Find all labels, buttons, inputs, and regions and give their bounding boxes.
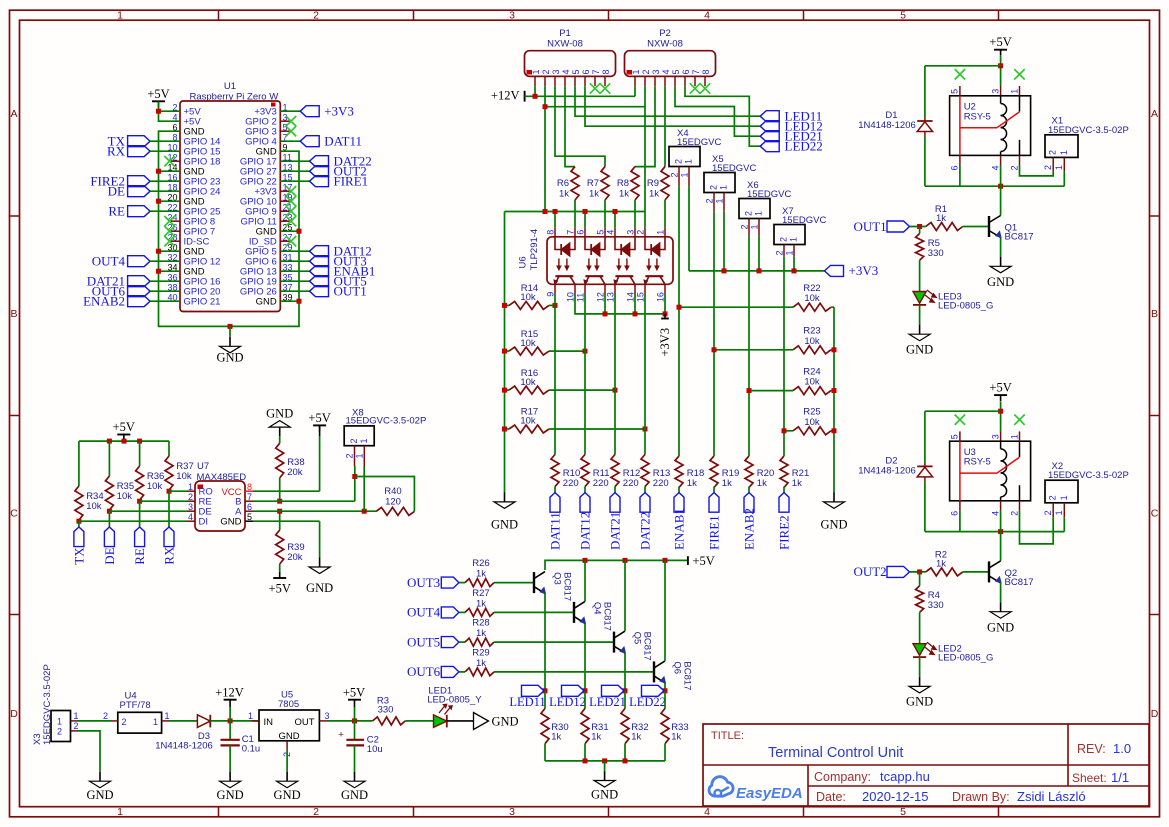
svg-text:OUT: OUT	[294, 717, 314, 728]
svg-text:+5V: +5V	[693, 554, 715, 568]
svg-text:7: 7	[247, 492, 252, 502]
svg-text:REV:: REV:	[1077, 742, 1106, 756]
svg-text:OUT3: OUT3	[407, 575, 440, 590]
svg-text:2: 2	[122, 717, 127, 727]
svg-text:7805: 7805	[278, 699, 299, 710]
svg-text:15EDGVC-3.5-02P: 15EDGVC-3.5-02P	[1048, 470, 1129, 481]
svg-text:1: 1	[680, 172, 690, 177]
svg-text:1N4148-1206: 1N4148-1206	[858, 466, 916, 477]
svg-text:1k: 1k	[649, 189, 659, 200]
svg-text:3: 3	[551, 69, 561, 74]
svg-text:FIRE2: FIRE2	[777, 515, 792, 550]
svg-text:NXW-08: NXW-08	[647, 39, 683, 50]
svg-text:11: 11	[576, 293, 586, 302]
svg-text:1: 1	[1009, 89, 1019, 94]
svg-text:LED21: LED21	[589, 695, 626, 709]
svg-text:+5V: +5V	[308, 411, 330, 425]
svg-text:1: 1	[359, 438, 369, 443]
svg-text:20k: 20k	[287, 552, 303, 563]
svg-text:DAT21: DAT21	[608, 512, 623, 550]
svg-text:D: D	[1151, 708, 1159, 720]
svg-text:U1: U1	[224, 81, 236, 92]
svg-text:2: 2	[349, 438, 359, 443]
svg-text:2: 2	[313, 10, 319, 22]
svg-text:1: 1	[1054, 510, 1064, 515]
svg-text:+3V3: +3V3	[658, 328, 672, 357]
svg-text:1: 1	[74, 711, 79, 721]
svg-text:20k: 20k	[287, 467, 303, 478]
svg-text:10k: 10k	[804, 417, 820, 428]
svg-text:10k: 10k	[520, 338, 536, 349]
svg-text:2020-12-15: 2020-12-15	[862, 789, 929, 804]
svg-text:3: 3	[990, 89, 1000, 94]
svg-text:U6: U6	[518, 256, 529, 268]
svg-text:3: 3	[990, 434, 1000, 439]
svg-text:2: 2	[641, 69, 651, 74]
svg-text:2: 2	[57, 726, 62, 736]
svg-text:RE: RE	[132, 548, 147, 565]
svg-text:1: 1	[719, 185, 729, 190]
svg-text:GND: GND	[492, 714, 519, 728]
svg-text:GND: GND	[266, 407, 293, 421]
svg-text:6: 6	[950, 165, 960, 170]
svg-text:6: 6	[576, 230, 586, 235]
svg-text:10k: 10k	[520, 416, 536, 427]
svg-text:D: D	[10, 708, 18, 720]
svg-text:FIRE1: FIRE1	[707, 515, 722, 550]
svg-text:Date:: Date:	[816, 790, 846, 804]
svg-text:LED-0805_Y: LED-0805_Y	[427, 695, 482, 706]
svg-text:3: 3	[509, 10, 515, 22]
svg-text:2: 2	[541, 69, 551, 74]
svg-text:+5V: +5V	[343, 685, 365, 699]
svg-text:16: 16	[656, 292, 666, 302]
svg-text:Company:: Company:	[814, 770, 871, 784]
svg-text:220: 220	[593, 478, 609, 489]
svg-text:+5V: +5V	[113, 420, 135, 434]
svg-text:RSY-5: RSY-5	[964, 111, 991, 122]
svg-text:220: 220	[653, 478, 669, 489]
svg-text:ENAB1: ENAB1	[672, 508, 687, 550]
svg-text:5: 5	[571, 69, 581, 74]
svg-text:+5V: +5V	[989, 35, 1011, 49]
svg-text:1: 1	[750, 224, 760, 229]
svg-text:4: 4	[561, 69, 571, 74]
svg-text:P1: P1	[559, 28, 571, 39]
svg-text:BC817: BC817	[682, 661, 693, 690]
svg-text:DE: DE	[102, 547, 117, 564]
svg-text:DI: DI	[199, 517, 209, 528]
svg-text:1/1: 1/1	[1111, 770, 1129, 785]
svg-text:3: 3	[651, 69, 661, 74]
svg-text:1k: 1k	[476, 658, 486, 669]
svg-text:2: 2	[188, 492, 193, 502]
svg-text:1k: 1k	[936, 213, 946, 224]
svg-text:2: 2	[1009, 511, 1019, 516]
svg-text:LED12: LED12	[549, 695, 586, 709]
svg-text:C: C	[1151, 508, 1159, 520]
svg-text:+12V: +12V	[215, 685, 244, 699]
svg-text:GND: GND	[306, 581, 333, 595]
svg-text:10k: 10k	[147, 481, 163, 492]
svg-text:R8: R8	[617, 178, 629, 189]
svg-text:10: 10	[566, 292, 576, 302]
svg-text:GND: GND	[906, 695, 933, 709]
svg-text:1k: 1k	[722, 478, 732, 489]
svg-text:5: 5	[950, 89, 960, 94]
svg-text:1N4148-1206: 1N4148-1206	[858, 120, 916, 131]
svg-text:DE: DE	[108, 184, 125, 199]
svg-text:13: 13	[606, 292, 616, 302]
svg-text:4: 4	[661, 69, 671, 74]
svg-text:1: 1	[1059, 150, 1069, 155]
svg-text:6: 6	[950, 511, 960, 516]
svg-text:1: 1	[785, 250, 795, 255]
svg-text:2: 2	[744, 211, 754, 216]
svg-text:4: 4	[990, 165, 1000, 170]
svg-text:RX: RX	[107, 144, 126, 159]
svg-text:1.0: 1.0	[1113, 741, 1131, 756]
svg-text:1k: 1k	[476, 569, 486, 580]
svg-text:1: 1	[117, 10, 123, 22]
svg-text:4: 4	[606, 230, 616, 235]
svg-text:1: 1	[656, 230, 666, 235]
svg-text:GND: GND	[341, 788, 368, 802]
svg-text:2: 2	[670, 172, 680, 177]
svg-text:10k: 10k	[804, 336, 820, 347]
svg-text:330: 330	[928, 248, 944, 259]
svg-text:LED-0805_G: LED-0805_G	[938, 653, 993, 664]
svg-text:DAT11: DAT11	[324, 134, 362, 149]
svg-text:10u: 10u	[367, 744, 383, 755]
svg-text:R7: R7	[587, 178, 599, 189]
svg-text:GND: GND	[906, 343, 933, 357]
svg-text:1k: 1k	[551, 732, 561, 743]
svg-text:220: 220	[623, 478, 639, 489]
svg-text:TITLE:: TITLE:	[711, 730, 744, 742]
svg-text:OUT6: OUT6	[407, 664, 441, 679]
svg-text:3: 3	[325, 711, 330, 721]
svg-text:4: 4	[704, 806, 710, 818]
svg-text:GND: GND	[220, 517, 241, 528]
svg-text:tcapp.hu: tcapp.hu	[880, 769, 930, 784]
svg-text:5: 5	[950, 434, 960, 439]
svg-text:R29: R29	[472, 647, 489, 658]
svg-text:R26: R26	[472, 558, 489, 569]
svg-text:10k: 10k	[176, 471, 192, 482]
svg-text:RX: RX	[162, 546, 177, 565]
svg-text:NXW-08: NXW-08	[547, 39, 583, 50]
svg-text:Terminal Control Unit: Terminal Control Unit	[768, 745, 903, 761]
svg-text:8: 8	[247, 482, 252, 492]
svg-text:Q5: Q5	[632, 632, 643, 645]
svg-text:1: 1	[1009, 434, 1019, 439]
svg-text:Q3: Q3	[552, 572, 563, 585]
svg-text:B: B	[1151, 308, 1158, 320]
svg-text:3: 3	[626, 230, 636, 235]
svg-text:R6: R6	[557, 178, 569, 189]
svg-text:0.1u: 0.1u	[242, 744, 261, 755]
svg-text:Sheet:: Sheet:	[1072, 771, 1107, 785]
svg-text:OUT4: OUT4	[407, 605, 441, 620]
svg-text:2: 2	[779, 237, 789, 242]
svg-text:1k: 1k	[589, 189, 599, 200]
svg-text:10k: 10k	[520, 292, 536, 303]
svg-text:2: 2	[345, 453, 355, 458]
svg-text:8: 8	[601, 69, 611, 74]
svg-text:120: 120	[385, 497, 401, 508]
svg-text:1: 1	[165, 711, 170, 721]
svg-text:1k: 1k	[792, 478, 802, 489]
svg-text:5: 5	[247, 512, 252, 522]
svg-text:10k: 10k	[86, 501, 102, 512]
svg-text:1k: 1k	[559, 189, 569, 200]
svg-text:1: 1	[754, 211, 764, 216]
svg-text:15EDGVC-3.5-02P: 15EDGVC-3.5-02P	[42, 664, 53, 745]
svg-text:+: +	[338, 729, 344, 740]
svg-text:OUT5: OUT5	[407, 634, 440, 649]
svg-text:Drawn By:: Drawn By:	[952, 790, 1010, 804]
svg-text:5: 5	[671, 69, 681, 74]
svg-text:GND: GND	[987, 275, 1014, 289]
svg-text:220: 220	[563, 478, 579, 489]
svg-text:A: A	[10, 108, 17, 120]
svg-text:2: 2	[74, 721, 79, 731]
svg-text:1k: 1k	[687, 478, 697, 489]
svg-text:1N4148-1206: 1N4148-1206	[155, 741, 213, 752]
svg-text:BC817: BC817	[642, 632, 653, 661]
svg-text:IN: IN	[264, 717, 274, 728]
svg-text:+3V3: +3V3	[324, 104, 354, 119]
svg-text:BC817: BC817	[1005, 577, 1034, 588]
svg-text:2: 2	[674, 159, 684, 164]
svg-text:GND: GND	[491, 518, 518, 532]
svg-text:330: 330	[378, 705, 394, 716]
svg-text:10k: 10k	[520, 377, 536, 388]
svg-text:C: C	[10, 508, 18, 520]
svg-text:4: 4	[990, 511, 1000, 516]
svg-text:+5V: +5V	[269, 582, 291, 596]
svg-text:9: 9	[546, 292, 556, 297]
svg-text:7: 7	[566, 230, 576, 235]
svg-text:Q4: Q4	[592, 602, 603, 615]
svg-text:GND: GND	[987, 621, 1014, 635]
svg-text:EasyEDA: EasyEDA	[736, 785, 803, 802]
svg-text:LED22: LED22	[629, 695, 666, 709]
svg-text:OUT4: OUT4	[92, 254, 126, 269]
svg-text:15EDGVC-3.5-02P: 15EDGVC-3.5-02P	[346, 416, 427, 427]
svg-text:1k: 1k	[476, 598, 486, 609]
svg-text:1: 1	[1059, 495, 1069, 500]
svg-text:1: 1	[531, 69, 541, 74]
svg-text:BC817: BC817	[1005, 232, 1034, 243]
svg-text:3: 3	[509, 806, 515, 818]
svg-text:1: 1	[117, 806, 123, 818]
svg-text:FIRE1: FIRE1	[334, 174, 369, 189]
svg-text:RSY-5: RSY-5	[964, 457, 991, 468]
svg-text:1k: 1k	[936, 558, 946, 569]
svg-text:1k: 1k	[631, 732, 641, 743]
svg-text:A: A	[1151, 108, 1158, 120]
svg-text:GND: GND	[217, 788, 244, 802]
svg-text:1k: 1k	[757, 478, 767, 489]
svg-text:ENAB2: ENAB2	[83, 294, 125, 309]
svg-text:1: 1	[684, 159, 694, 164]
svg-text:1k: 1k	[476, 628, 486, 639]
svg-text:7: 7	[591, 69, 601, 74]
svg-text:1: 1	[789, 237, 799, 242]
svg-text:2: 2	[1048, 495, 1058, 500]
svg-text:1: 1	[153, 717, 158, 727]
svg-text:TLP291-4: TLP291-4	[529, 229, 540, 271]
svg-text:OUT2: OUT2	[853, 564, 886, 579]
svg-text:2: 2	[1048, 150, 1058, 155]
svg-text:1: 1	[248, 711, 253, 721]
svg-text:+12V: +12V	[491, 88, 520, 102]
svg-text:RE: RE	[108, 204, 125, 219]
svg-text:GND: GND	[86, 788, 113, 802]
svg-text:1k: 1k	[591, 732, 601, 743]
svg-text:2: 2	[1043, 510, 1053, 515]
svg-text:Zsidi László: Zsidi László	[1017, 789, 1086, 804]
svg-text:LED11: LED11	[509, 695, 545, 709]
svg-text:1: 1	[631, 69, 641, 74]
svg-text:2: 2	[1043, 165, 1053, 170]
svg-text:PTF/78: PTF/78	[120, 700, 151, 711]
svg-text:2: 2	[709, 185, 719, 190]
svg-text:5: 5	[900, 10, 906, 22]
svg-text:GPIO 21: GPIO 21	[184, 296, 221, 307]
svg-text:15EDGVC: 15EDGVC	[712, 163, 756, 174]
svg-text:12: 12	[596, 292, 606, 302]
svg-text:Q6: Q6	[672, 661, 683, 674]
svg-text:6: 6	[581, 69, 591, 74]
svg-text:R28: R28	[472, 618, 489, 629]
svg-text:15EDGVC: 15EDGVC	[677, 137, 721, 148]
svg-text:2: 2	[313, 806, 319, 818]
svg-text:DAT12: DAT12	[578, 512, 593, 550]
svg-text:14: 14	[626, 292, 636, 302]
svg-text:6: 6	[247, 502, 252, 512]
svg-text:ENAB2: ENAB2	[742, 508, 757, 550]
svg-text:5: 5	[900, 806, 906, 818]
svg-text:5: 5	[596, 230, 606, 235]
svg-text:7: 7	[691, 69, 701, 74]
svg-text:LED22: LED22	[785, 139, 823, 154]
svg-text:1k: 1k	[671, 732, 681, 743]
svg-text:OUT1: OUT1	[853, 219, 886, 234]
svg-text:LED-0805_G: LED-0805_G	[938, 301, 993, 312]
svg-text:R27: R27	[472, 588, 489, 599]
svg-text:1k: 1k	[619, 189, 629, 200]
svg-text:15EDGVC: 15EDGVC	[747, 189, 791, 200]
svg-text:GND: GND	[820, 518, 847, 532]
svg-text:B: B	[10, 308, 17, 320]
svg-text:GND: GND	[256, 296, 277, 307]
svg-text:8: 8	[701, 69, 711, 74]
svg-text:4: 4	[704, 10, 710, 22]
svg-text:GND: GND	[591, 787, 618, 801]
svg-text:BC817: BC817	[602, 602, 613, 631]
svg-text:15EDGVC: 15EDGVC	[782, 215, 826, 226]
svg-text:GND: GND	[216, 351, 243, 365]
svg-text:+5V: +5V	[989, 381, 1011, 395]
svg-text:1: 1	[1054, 165, 1064, 170]
svg-text:10k: 10k	[117, 491, 133, 502]
svg-text:1: 1	[355, 453, 365, 458]
svg-text:R9: R9	[647, 178, 659, 189]
svg-text:OUT1: OUT1	[334, 284, 367, 299]
svg-text:2: 2	[740, 224, 750, 229]
svg-text:2: 2	[636, 230, 646, 235]
svg-text:15: 15	[636, 292, 646, 302]
svg-text:1: 1	[715, 198, 725, 203]
svg-text:3: 3	[188, 502, 193, 512]
svg-text:1: 1	[188, 482, 193, 492]
svg-text:10k: 10k	[804, 377, 820, 388]
svg-text:6: 6	[681, 69, 691, 74]
svg-text:R40: R40	[384, 486, 401, 497]
svg-text:+5V: +5V	[147, 87, 169, 101]
svg-text:4: 4	[188, 512, 193, 522]
svg-text:TX: TX	[72, 547, 87, 565]
svg-text:+3V3: +3V3	[849, 263, 879, 278]
svg-text:330: 330	[928, 600, 944, 611]
svg-text:Raspberry Pi Zero W: Raspberry Pi Zero W	[190, 91, 279, 102]
svg-text:GND: GND	[278, 731, 299, 742]
svg-text:2: 2	[103, 711, 108, 721]
svg-text:U7: U7	[197, 461, 209, 472]
svg-text:2: 2	[775, 250, 785, 255]
svg-text:15EDGVC-3.5-02P: 15EDGVC-3.5-02P	[1048, 125, 1129, 136]
svg-text:10k: 10k	[804, 293, 820, 304]
svg-text:8: 8	[546, 230, 556, 235]
svg-text:BC817: BC817	[562, 572, 573, 601]
svg-text:P2: P2	[659, 28, 671, 39]
svg-text:2: 2	[1009, 165, 1019, 170]
svg-text:DAT11: DAT11	[548, 512, 563, 550]
svg-text:DAT22: DAT22	[638, 512, 653, 550]
svg-text:GND: GND	[274, 788, 301, 802]
svg-text:2: 2	[705, 198, 715, 203]
svg-text:MAX485ED: MAX485ED	[197, 472, 247, 483]
svg-text:1: 1	[57, 716, 62, 726]
